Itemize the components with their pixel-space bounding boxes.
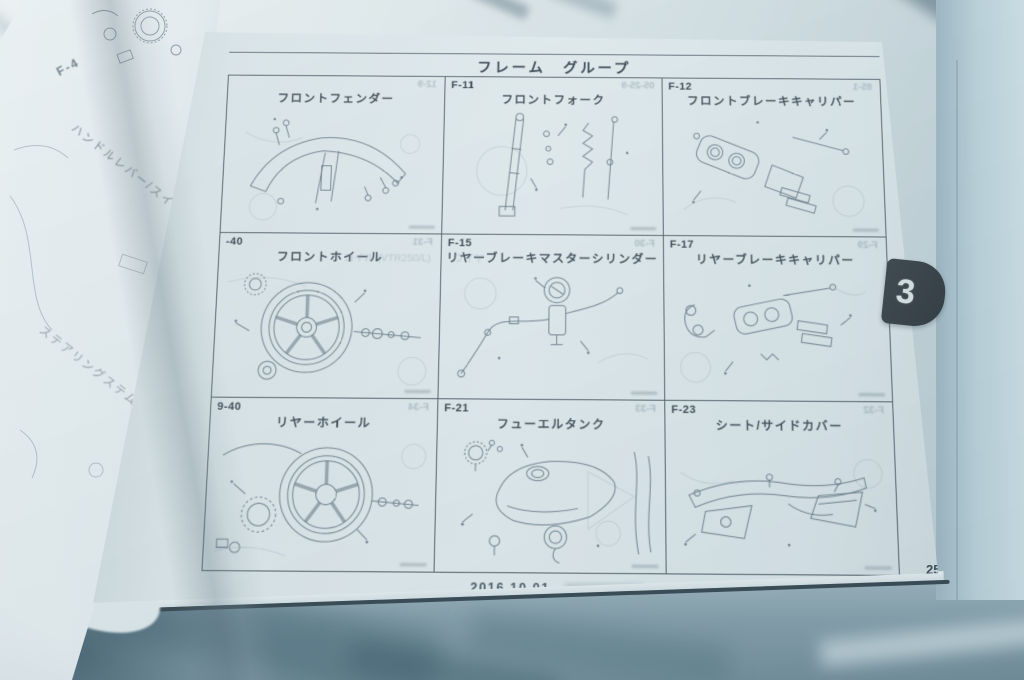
front-wheel-diagram	[212, 263, 441, 395]
ghost-code: F-31	[413, 237, 433, 248]
panel-code: F-21	[444, 402, 469, 414]
panel-fuel-tank: F-21 F-33 フューエルタンク	[435, 399, 667, 573]
panel-rear-brake-caliper: F-17 F-29 リヤーブレーキキャリパー	[664, 236, 892, 402]
group-title: フレーム グループ	[228, 55, 880, 77]
front-fender-diagram	[221, 104, 444, 231]
ghost-code: F-29	[858, 240, 879, 251]
front-fork-diagram	[442, 106, 663, 233]
rear-wheel-diagram	[203, 429, 437, 568]
table-streak	[468, 0, 530, 20]
fuel-tank-diagram	[435, 430, 666, 569]
panel-grid: 12-9 フロントフェンダー F-11	[201, 75, 900, 576]
photo-scene: F-4 ハンドルレバー/スイッチ ステアリングステム フレーム グループ 12-…	[0, 0, 1024, 680]
seat-side-cover-diagram	[665, 432, 898, 571]
table-streak	[544, 0, 617, 19]
panel-front-wheel: -40 F-31 フロントホイール コイル (VTR250/L)	[212, 233, 442, 399]
panel-code: -40	[226, 236, 244, 248]
ghost-title: ワイヤ	[453, 251, 484, 266]
ghost-code: F-33	[636, 404, 657, 415]
page-content: フレーム グループ 12-9 フロントフェンダー	[200, 52, 901, 607]
panel-seat-side-cover: F-23 F-32 シート/サイドカバー	[665, 401, 899, 575]
page-stack-line	[956, 60, 958, 600]
panel-code: F-12	[668, 81, 692, 92]
ghost-code: F-32	[864, 405, 885, 416]
page-stack-edge	[936, 0, 1024, 600]
right-page: フレーム グループ 12-9 フロントフェンダー	[88, 22, 950, 614]
panel-code: F-23	[671, 404, 696, 416]
ghost-code: 12-9	[417, 80, 436, 90]
section-tab-number: 3	[894, 272, 917, 313]
ghost-code: 85-1	[853, 82, 873, 92]
rear-brake-caliper-diagram	[664, 266, 892, 399]
panel-code: 9-40	[217, 401, 242, 413]
panel-rear-brake-master-cylinder: F-15 F-30 リヤーブレーキマスターシリンダー ワイヤ	[438, 234, 665, 400]
panel-front-brake-caliper: F-12 85-1 フロントブレーキキャリパー	[663, 78, 886, 237]
panel-code: F-15	[448, 237, 472, 249]
ghost-code: 05-25-9	[621, 81, 654, 91]
rear-brake-master-cylinder-diagram	[439, 264, 665, 396]
panel-code: F-11	[451, 80, 474, 91]
panel-front-fender: 12-9 フロントフェンダー	[221, 76, 446, 235]
panel-rear-wheel: 9-40 F-34 リヤーホイール	[203, 398, 439, 572]
panel-front-fork: F-11 05-25-9 フロントフォーク	[442, 77, 664, 236]
front-brake-caliper-diagram	[663, 107, 886, 234]
ghost-code: F-34	[408, 402, 429, 413]
ghost-code: F-30	[635, 239, 655, 250]
panel-code: F-17	[670, 239, 694, 251]
